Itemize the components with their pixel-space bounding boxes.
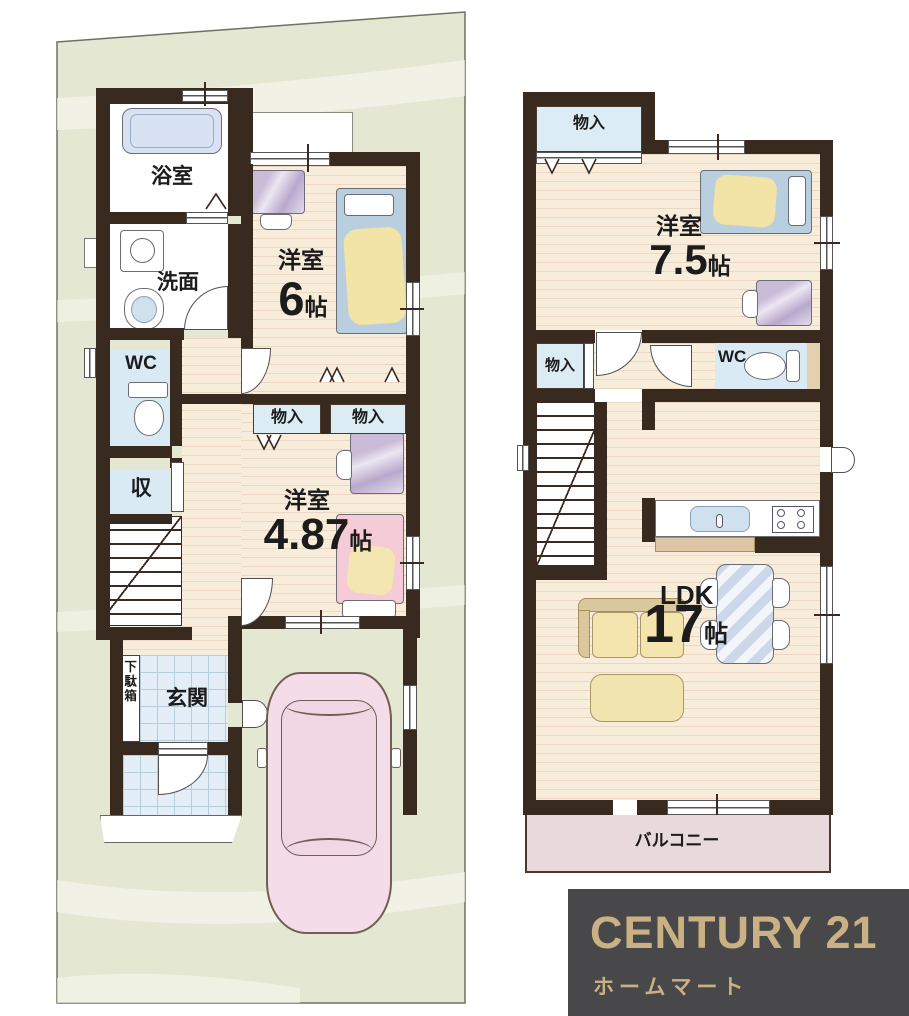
room-label-shoe-cabinet: 下駄箱	[122, 660, 135, 704]
area-number: 4.87	[264, 510, 350, 559]
desk	[756, 280, 812, 326]
toilet-tank	[786, 350, 800, 382]
brand-logo: CENTURY 21 ホームマート	[568, 889, 909, 1016]
wall	[228, 727, 242, 742]
window-tick	[400, 562, 424, 564]
closet-chevron	[204, 192, 230, 210]
window	[403, 685, 417, 730]
room-label-bath: 浴室	[140, 166, 204, 188]
area-unit: 帖	[708, 253, 731, 279]
room-label-storage: 収	[126, 478, 156, 500]
wall	[403, 730, 417, 815]
wall	[228, 88, 253, 104]
bed-blanket	[712, 174, 777, 228]
wall	[96, 88, 110, 640]
wall	[642, 140, 668, 154]
window-tick	[400, 308, 424, 310]
window-tick	[814, 242, 840, 244]
dining-chair	[772, 620, 790, 650]
wall	[523, 92, 655, 106]
wall	[96, 446, 172, 458]
wall	[96, 514, 172, 524]
car-cabin	[281, 700, 377, 856]
wall	[182, 394, 420, 404]
room-area-bedroom6: 6帖	[258, 274, 348, 323]
wall	[228, 616, 242, 703]
sofa-cushion	[592, 612, 638, 658]
toilet-tank	[128, 382, 168, 398]
window-tick	[814, 614, 840, 616]
toilet-bowl	[134, 400, 164, 436]
window	[285, 616, 360, 629]
room-label-bedroom75: 洋室	[644, 214, 714, 238]
area-number: 7.5	[649, 236, 707, 283]
wall	[820, 472, 833, 566]
car-rear-window	[285, 694, 373, 716]
room-area-bedroom75: 7.5帖	[630, 238, 750, 282]
wall	[523, 389, 595, 402]
area-number: 6	[278, 272, 304, 325]
closet-chevron	[383, 366, 411, 383]
sliding-door	[158, 742, 208, 755]
stove-burner	[777, 521, 785, 529]
wall	[642, 389, 655, 430]
wall	[594, 402, 607, 566]
window-tick	[204, 82, 206, 106]
room-label-washroom: 洗面	[147, 272, 209, 294]
stove-burner	[797, 509, 805, 517]
folding-door	[171, 462, 184, 512]
desk-chair	[260, 214, 292, 230]
wall	[98, 627, 192, 640]
toilet-bowl	[744, 352, 786, 380]
closet-label: 物入	[560, 116, 618, 133]
room-area-bedroom487: 4.87帖	[252, 512, 384, 558]
dining-chair	[772, 578, 790, 608]
closet-label: 物入	[339, 410, 397, 427]
area-unit: 帖	[349, 528, 372, 554]
desk	[350, 432, 404, 494]
room-label-wc-2f: WC	[718, 348, 738, 365]
wall	[642, 330, 833, 343]
closet-label: 物入	[532, 358, 588, 374]
bed-blanket	[343, 226, 408, 326]
wall	[110, 742, 158, 755]
wall	[96, 212, 186, 224]
car-windshield	[285, 838, 373, 864]
washing-machine-drum	[130, 238, 155, 263]
brand-logo-text: CENTURY 21	[590, 907, 878, 959]
desk	[247, 170, 305, 214]
closet-chevron	[580, 158, 608, 175]
wall	[208, 742, 242, 755]
wall	[820, 270, 833, 447]
window-tick	[320, 610, 322, 634]
counter-ledge	[655, 537, 755, 552]
room-area-ldk: 17帖	[644, 596, 744, 653]
window	[517, 445, 529, 471]
wall	[529, 566, 607, 580]
balcony-label: バルコニー	[622, 832, 732, 850]
wall	[637, 800, 667, 815]
desk-chair	[336, 450, 352, 480]
wall	[228, 755, 242, 815]
door-arc	[831, 447, 855, 473]
room-label-wc: WC	[118, 354, 164, 374]
room-label-entrance: 玄関	[154, 688, 220, 710]
wall	[642, 389, 820, 402]
sofa-arm	[578, 610, 590, 658]
wall	[406, 152, 420, 282]
window	[668, 140, 745, 154]
bay-eave	[241, 112, 353, 155]
kitchen-faucet	[716, 514, 723, 528]
window	[84, 348, 96, 378]
floorplan-canvas: 浴室 洗面 WC 収 下駄箱 玄関 洋室 6帖 物入 物入 洋室 4.87帖	[0, 0, 909, 1016]
hall-floor	[123, 640, 233, 656]
wall	[820, 664, 833, 805]
brand-shop-text: ホームマート	[593, 971, 748, 1001]
area-number: 17	[644, 594, 704, 654]
wall	[755, 537, 820, 553]
hall-floor	[182, 338, 241, 640]
counter-side	[807, 343, 820, 389]
room-label-bedroom487: 洋室	[272, 488, 342, 512]
wall	[523, 330, 595, 343]
sliding-door	[186, 212, 228, 224]
window	[250, 152, 330, 166]
closet-chevron	[255, 434, 283, 451]
closet-chevron	[318, 366, 346, 383]
porch-step	[100, 815, 242, 843]
closet-chevron	[543, 158, 571, 175]
car-mirror	[257, 748, 267, 768]
area-unit: 帖	[704, 621, 728, 648]
window-tick	[307, 144, 309, 172]
bed-pillow	[344, 194, 394, 216]
closet-label: 物入	[258, 410, 316, 427]
wall	[820, 140, 833, 216]
wall	[403, 629, 417, 685]
wall	[170, 338, 182, 446]
car-mirror	[391, 748, 401, 768]
area-unit: 帖	[305, 294, 328, 320]
wall	[770, 800, 833, 815]
wash-basin-bowl	[131, 296, 157, 323]
bathtub-inner	[130, 114, 214, 148]
wall	[523, 800, 613, 815]
room-label-bedroom6: 洋室	[266, 248, 336, 272]
entry-door-arc	[242, 700, 268, 728]
stove-burner	[777, 509, 785, 517]
bed-pillow	[788, 176, 806, 226]
wall	[241, 164, 253, 348]
window-tick	[717, 134, 719, 160]
stove-burner	[797, 521, 805, 529]
wall	[642, 498, 655, 542]
rug	[590, 674, 684, 722]
wall	[360, 616, 420, 629]
desk-chair	[742, 290, 758, 318]
wall	[321, 404, 330, 434]
window	[667, 800, 770, 815]
